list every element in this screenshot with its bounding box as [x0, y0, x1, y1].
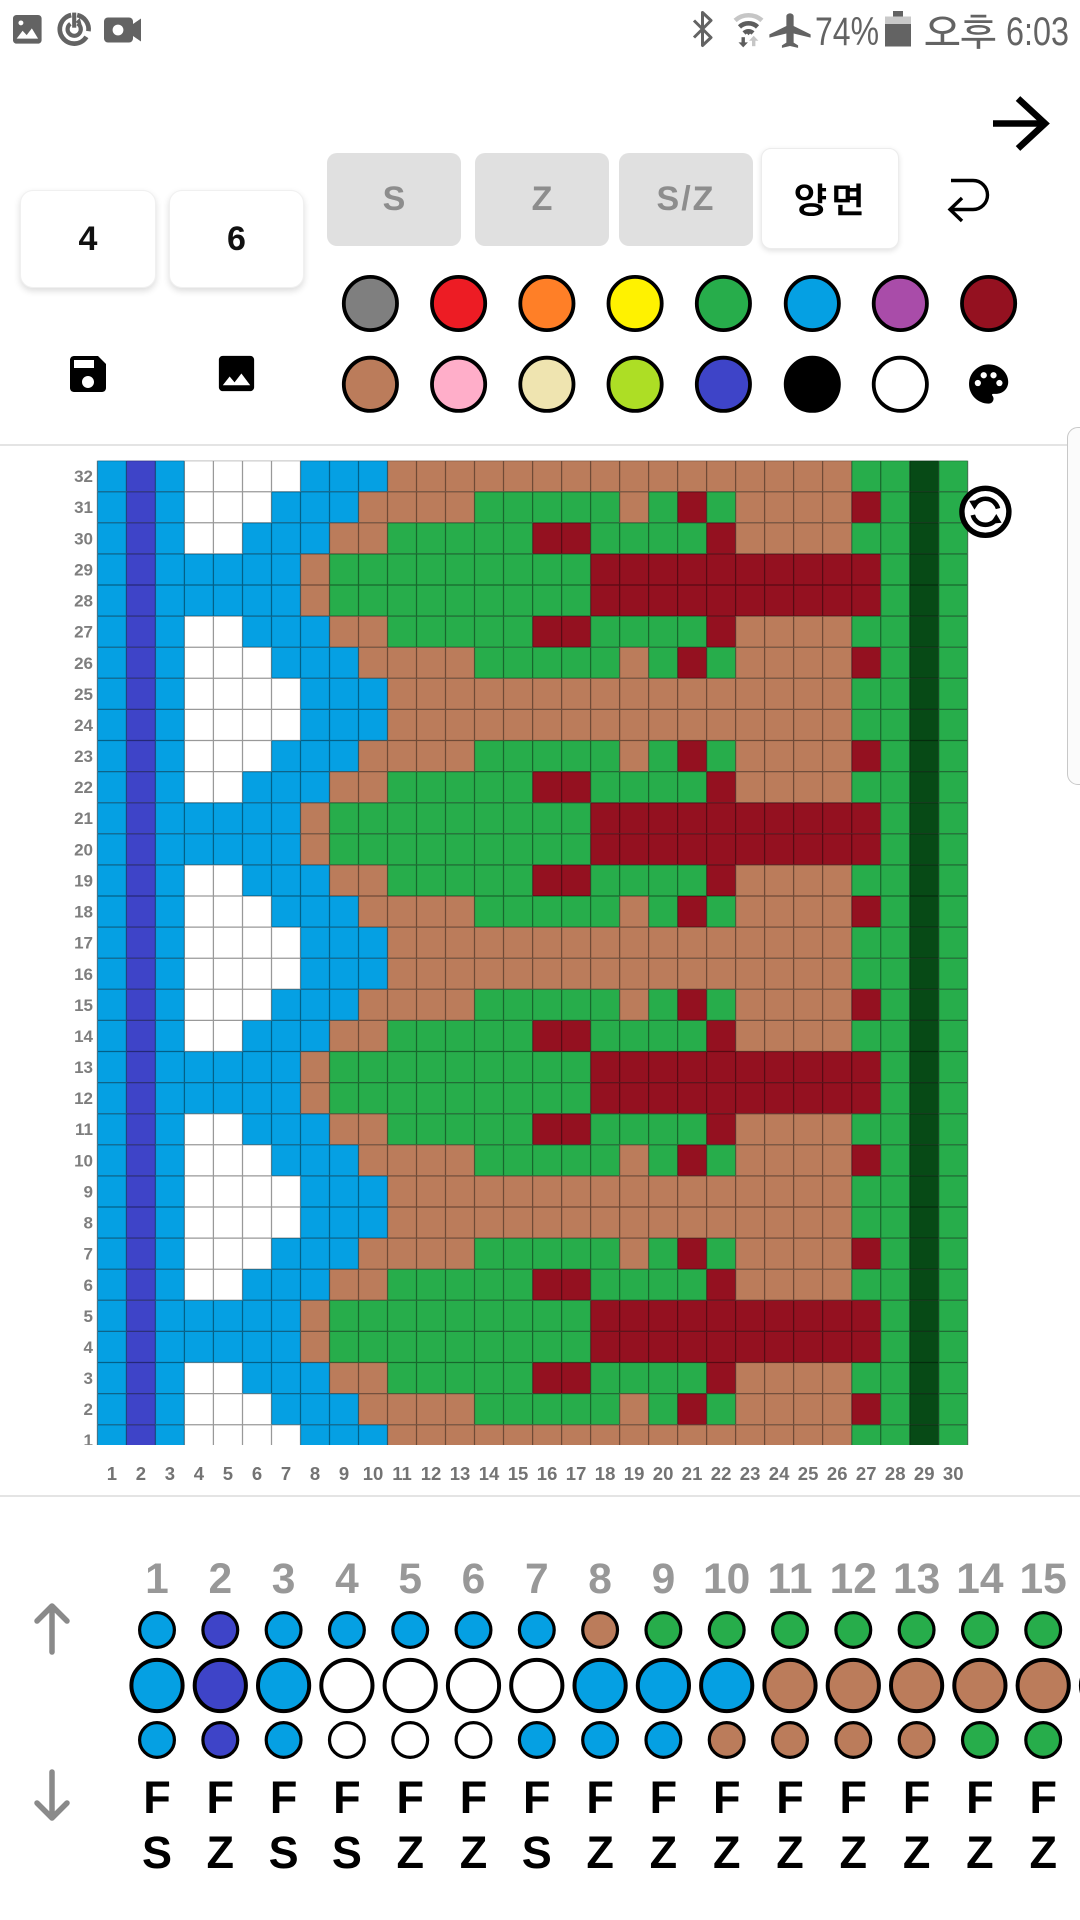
- svg-text:10: 10: [74, 1151, 93, 1170]
- svg-text:13: 13: [893, 1556, 940, 1603]
- svg-text:2: 2: [84, 1400, 93, 1419]
- svg-text:20: 20: [653, 1463, 674, 1484]
- svg-text:26: 26: [827, 1463, 848, 1484]
- svg-text:F: F: [586, 1772, 614, 1823]
- svg-text:15: 15: [74, 996, 93, 1015]
- svg-text:14: 14: [956, 1556, 1004, 1603]
- svg-text:S: S: [332, 1827, 362, 1878]
- svg-text:F: F: [207, 1772, 235, 1823]
- svg-text:8: 8: [588, 1556, 612, 1603]
- svg-text:28: 28: [74, 592, 93, 611]
- svg-text:2: 2: [208, 1556, 232, 1603]
- svg-text:16: 16: [537, 1463, 558, 1484]
- svg-text:21: 21: [682, 1463, 703, 1484]
- svg-text:F: F: [840, 1772, 868, 1823]
- svg-text:13: 13: [450, 1463, 471, 1484]
- svg-text:11: 11: [75, 1120, 93, 1139]
- svg-text:23: 23: [740, 1463, 761, 1484]
- svg-text:Z: Z: [396, 1827, 424, 1878]
- svg-text:5: 5: [223, 1463, 233, 1484]
- svg-text:5: 5: [84, 1307, 93, 1326]
- svg-text:5: 5: [398, 1556, 422, 1603]
- svg-text:20: 20: [74, 840, 93, 859]
- svg-text:Z: Z: [966, 1827, 994, 1878]
- svg-text:Z: Z: [840, 1827, 868, 1878]
- svg-text:15: 15: [508, 1463, 529, 1484]
- svg-text:18: 18: [595, 1463, 616, 1484]
- svg-text:F: F: [143, 1772, 171, 1823]
- svg-text:24: 24: [74, 716, 93, 735]
- svg-text:14: 14: [479, 1463, 500, 1484]
- svg-text:11: 11: [768, 1556, 813, 1603]
- svg-text:3: 3: [272, 1556, 296, 1603]
- svg-text:F: F: [713, 1772, 741, 1823]
- svg-text:S: S: [522, 1827, 552, 1878]
- svg-text:22: 22: [74, 778, 93, 797]
- svg-text:7: 7: [525, 1556, 549, 1603]
- svg-text:6: 6: [84, 1276, 93, 1295]
- svg-text:4: 4: [194, 1463, 205, 1484]
- svg-text:S: S: [142, 1827, 172, 1878]
- svg-text:9: 9: [339, 1463, 349, 1484]
- svg-text:7: 7: [84, 1245, 93, 1264]
- svg-text:8: 8: [310, 1463, 320, 1484]
- svg-text:S: S: [269, 1827, 299, 1878]
- svg-text:F: F: [650, 1772, 678, 1823]
- svg-text:1: 1: [84, 1431, 93, 1450]
- svg-text:Z: Z: [460, 1827, 488, 1878]
- svg-text:19: 19: [74, 872, 93, 891]
- svg-text:30: 30: [943, 1463, 964, 1484]
- svg-text:17: 17: [74, 934, 93, 953]
- svg-text:1: 1: [107, 1463, 117, 1484]
- svg-text:Z: Z: [713, 1827, 741, 1878]
- svg-text:1: 1: [145, 1556, 169, 1603]
- svg-text:32: 32: [74, 467, 93, 486]
- svg-text:11: 11: [392, 1463, 412, 1484]
- svg-text:9: 9: [652, 1556, 676, 1603]
- svg-text:19: 19: [624, 1463, 645, 1484]
- svg-text:14: 14: [74, 1027, 93, 1046]
- svg-text:28: 28: [885, 1463, 906, 1484]
- svg-text:9: 9: [84, 1183, 93, 1202]
- svg-text:Z: Z: [650, 1827, 678, 1878]
- svg-text:3: 3: [165, 1463, 175, 1484]
- svg-text:12: 12: [421, 1463, 442, 1484]
- svg-text:Z: Z: [207, 1827, 235, 1878]
- svg-text:6: 6: [462, 1556, 486, 1603]
- svg-text:30: 30: [74, 529, 93, 548]
- svg-text:15: 15: [1020, 1556, 1067, 1603]
- svg-text:31: 31: [74, 498, 93, 517]
- svg-text:12: 12: [74, 1089, 93, 1108]
- svg-text:F: F: [333, 1772, 361, 1823]
- svg-text:12: 12: [830, 1556, 877, 1603]
- svg-text:F: F: [396, 1772, 424, 1823]
- svg-text:18: 18: [74, 903, 93, 922]
- svg-text:4: 4: [84, 1338, 94, 1357]
- svg-text:2: 2: [136, 1463, 146, 1484]
- svg-text:F: F: [523, 1772, 551, 1823]
- svg-text:Z: Z: [1029, 1827, 1057, 1878]
- svg-text:10: 10: [363, 1463, 384, 1484]
- svg-text:16: 16: [74, 965, 93, 984]
- svg-text:Z: Z: [776, 1827, 804, 1878]
- svg-text:10: 10: [703, 1556, 750, 1603]
- svg-text:8: 8: [84, 1214, 93, 1233]
- svg-text:Z: Z: [903, 1827, 931, 1878]
- svg-text:Z: Z: [586, 1827, 614, 1878]
- svg-text:24: 24: [769, 1463, 790, 1484]
- svg-text:13: 13: [74, 1058, 93, 1077]
- svg-text:F: F: [903, 1772, 931, 1823]
- svg-text:21: 21: [74, 809, 93, 828]
- svg-text:23: 23: [74, 747, 93, 766]
- svg-text:F: F: [1029, 1772, 1057, 1823]
- svg-text:3: 3: [84, 1369, 93, 1388]
- svg-text:25: 25: [798, 1463, 819, 1484]
- svg-text:4: 4: [335, 1556, 359, 1603]
- svg-text:26: 26: [74, 654, 93, 673]
- svg-text:7: 7: [281, 1463, 291, 1484]
- svg-text:F: F: [966, 1772, 994, 1823]
- svg-text:29: 29: [74, 561, 93, 580]
- svg-text:F: F: [460, 1772, 488, 1823]
- svg-text:F: F: [776, 1772, 804, 1823]
- svg-text:17: 17: [566, 1463, 587, 1484]
- svg-text:27: 27: [856, 1463, 877, 1484]
- svg-text:29: 29: [914, 1463, 935, 1484]
- svg-text:25: 25: [74, 685, 93, 704]
- svg-text:22: 22: [711, 1463, 732, 1484]
- svg-text:6: 6: [252, 1463, 262, 1484]
- svg-text:27: 27: [74, 623, 93, 642]
- svg-text:F: F: [270, 1772, 298, 1823]
